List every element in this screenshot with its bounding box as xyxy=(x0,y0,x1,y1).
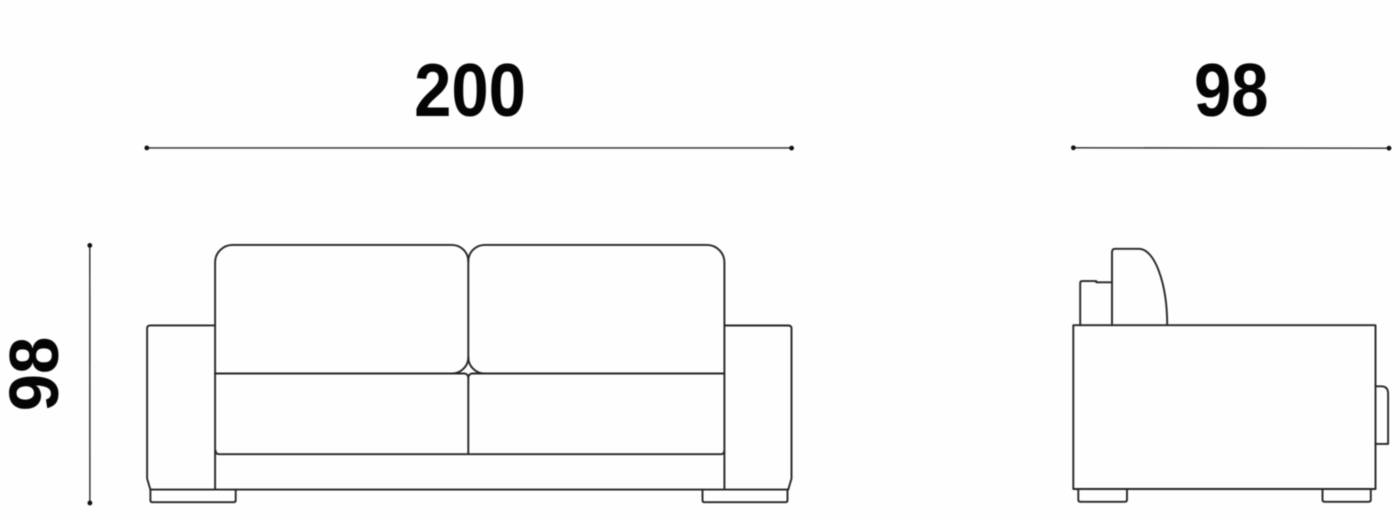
svg-text:98: 98 xyxy=(0,337,73,412)
svg-text:200: 200 xyxy=(414,50,526,133)
svg-text:98: 98 xyxy=(1194,50,1269,133)
